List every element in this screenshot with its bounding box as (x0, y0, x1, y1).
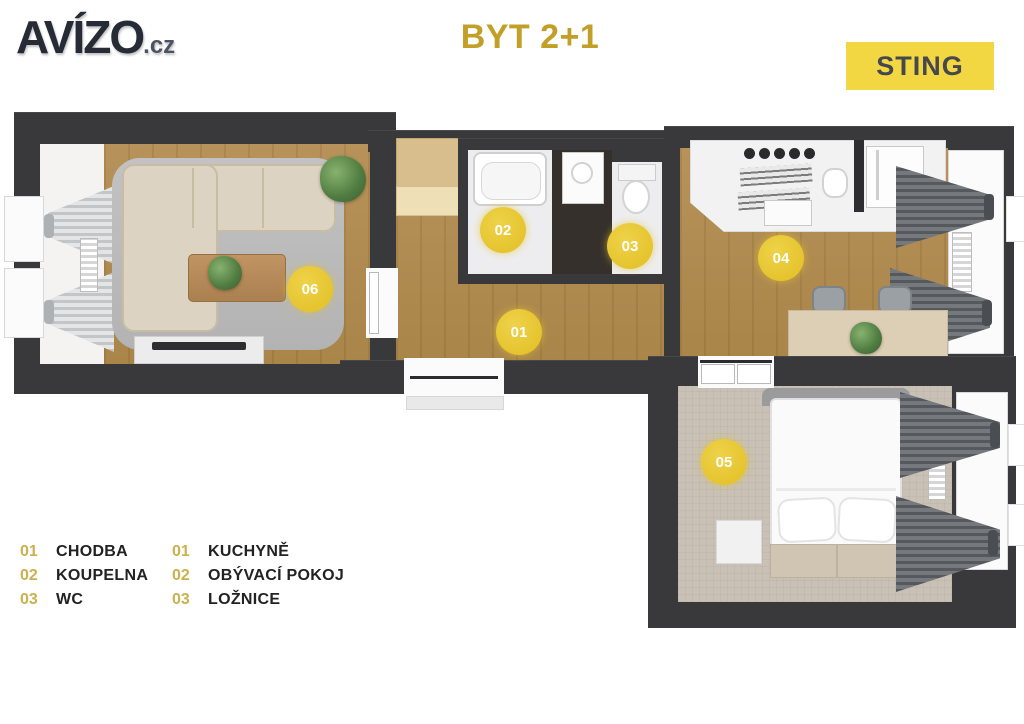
legend-num: 03 (20, 591, 46, 609)
exterior-sill (1008, 504, 1024, 546)
tv-stand (134, 336, 264, 364)
exterior-sill (1006, 196, 1024, 242)
legend-item: 01 CHODBA (20, 540, 148, 564)
fridge-handle (876, 150, 879, 200)
tv-icon (152, 342, 246, 350)
curtain-knot-icon (988, 530, 998, 556)
living-room-window-2 (4, 268, 44, 338)
hall-wardrobe (396, 138, 464, 188)
room-marker-kitchen: 04 (758, 235, 804, 281)
bed-blanket (770, 544, 902, 578)
bathtub-basin (481, 162, 541, 200)
room-marker-bathroom: 02 (480, 207, 526, 253)
curtain-knot-icon (982, 300, 992, 326)
room-marker-living-room: 06 (287, 266, 333, 312)
sofa-chaise (122, 164, 218, 332)
pillow-icon (837, 497, 897, 544)
radiator-icon (80, 238, 98, 292)
legend-item: 02 OBÝVACÍ POKOJ (172, 564, 344, 588)
bedroom-door-leaf (737, 364, 771, 384)
stove-burner-icon (759, 148, 770, 159)
cutting-board (764, 200, 812, 226)
hallway-bottom-wall (340, 360, 680, 394)
legend-label: WC (56, 591, 83, 609)
living-room-window-1 (4, 196, 44, 262)
floor-plan: 01 02 03 04 05 06 (0, 0, 1024, 724)
living-room-door-leaf (369, 272, 379, 334)
bedroom-door-leaf (701, 364, 735, 384)
stove-burner-icon (774, 148, 785, 159)
legend-num: 01 (20, 543, 46, 561)
legend-num: 02 (20, 567, 46, 585)
legend-num: 01 (172, 543, 198, 561)
curtain-knot-icon (44, 214, 54, 238)
stove-burner-icon (789, 148, 800, 159)
legend-column-2: 01 KUCHYNĚ 02 OBÝVACÍ POKOJ 03 LOŽNICE (172, 540, 344, 612)
legend-label: CHODBA (56, 543, 128, 561)
sofa-seam (262, 168, 264, 228)
room-marker-bedroom: 05 (701, 439, 747, 485)
hall-wardrobe-front (396, 186, 464, 216)
stove-burner-icon (744, 148, 755, 159)
entrance-step (406, 396, 504, 410)
plant-icon (850, 322, 882, 354)
legend-label: KUCHYNĚ (208, 543, 289, 561)
stove-burner-icon (804, 148, 815, 159)
legend-label: LOŽNICE (208, 591, 280, 609)
legend-num: 03 (172, 591, 198, 609)
toilet-icon (618, 164, 656, 181)
toilet-bowl (622, 180, 650, 214)
radiator-icon (952, 232, 972, 292)
legend-label: OBÝVACÍ POKOJ (208, 567, 344, 585)
curtain-knot-icon (984, 194, 994, 220)
curtain-knot-icon (44, 300, 54, 324)
sofa-seam (192, 168, 194, 228)
legend-item: 01 KUCHYNĚ (172, 540, 344, 564)
legend-column-1: 01 CHODBA 02 KOUPELNA 03 WC (20, 540, 148, 612)
bedroom-door-line (700, 360, 772, 363)
pillow-icon (777, 497, 837, 544)
plant-icon (208, 256, 242, 290)
entrance-door-leaf (410, 376, 498, 379)
plant-icon (320, 156, 366, 202)
legend-item: 02 KOUPELNA (20, 564, 148, 588)
legend-item: 03 WC (20, 588, 148, 612)
nightstand (716, 520, 762, 564)
legend-label: KOUPELNA (56, 567, 148, 585)
legend-item: 03 LOŽNICE (172, 588, 344, 612)
counter-divider (854, 140, 864, 212)
curtain-knot-icon (990, 422, 1000, 448)
room-marker-wc: 03 (607, 223, 653, 269)
room-marker-hallway: 01 (496, 309, 542, 355)
exterior-sill (1008, 424, 1024, 466)
kitchen-sink-icon (822, 168, 848, 198)
sink-basin (571, 162, 593, 184)
legend-num: 02 (172, 567, 198, 585)
